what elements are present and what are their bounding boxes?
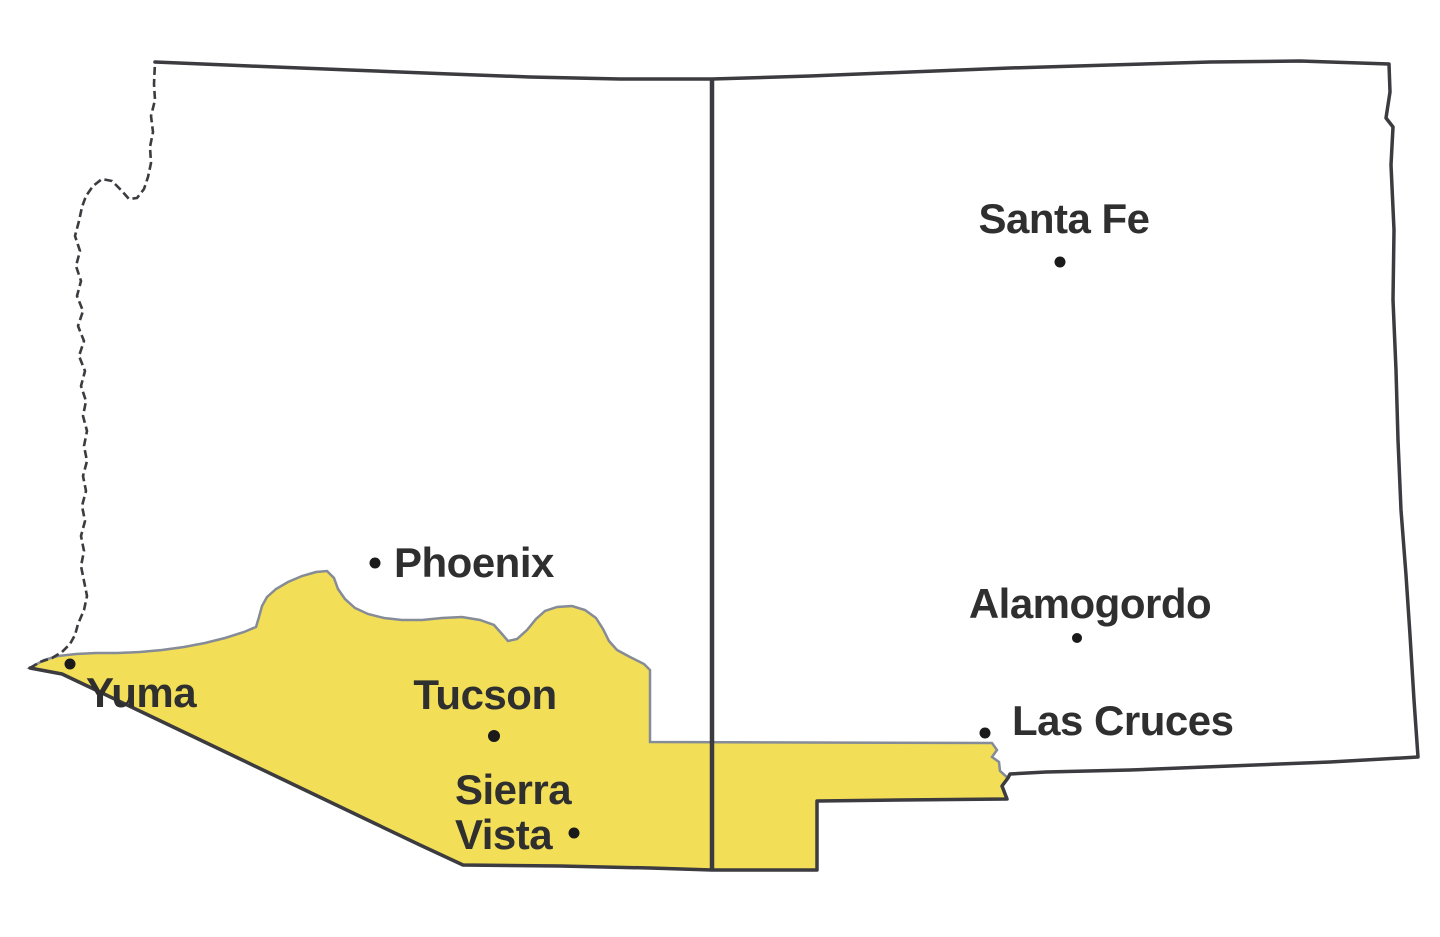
city-dot-yuma bbox=[65, 659, 76, 670]
city-dot-phoenix bbox=[370, 558, 381, 569]
city-label-alamogordo: Alamogordo bbox=[969, 580, 1211, 627]
map-screenshot: Santa Fe Phoenix Tucson Sierra Vista Yum… bbox=[0, 0, 1440, 937]
river-border bbox=[30, 62, 155, 668]
city-label-yuma: Yuma bbox=[86, 669, 197, 716]
city-dot-santa-fe bbox=[1055, 257, 1066, 268]
city-label-tucson: Tucson bbox=[413, 671, 556, 718]
city-label-phoenix: Phoenix bbox=[394, 539, 555, 586]
city-dot-alamogordo bbox=[1072, 633, 1082, 643]
city-dot-sierra-vista bbox=[569, 828, 580, 839]
city-label-sierra-vista-line2: Vista bbox=[455, 811, 553, 858]
city-label-las-cruces: Las Cruces bbox=[1012, 697, 1233, 744]
city-label-sierra-vista-line1: Sierra bbox=[455, 766, 572, 813]
city-label-santa-fe: Santa Fe bbox=[978, 195, 1149, 242]
states-map-canvas: Santa Fe Phoenix Tucson Sierra Vista Yum… bbox=[0, 0, 1440, 937]
city-dot-tucson bbox=[488, 730, 500, 742]
city-dot-las-cruces bbox=[980, 728, 991, 739]
